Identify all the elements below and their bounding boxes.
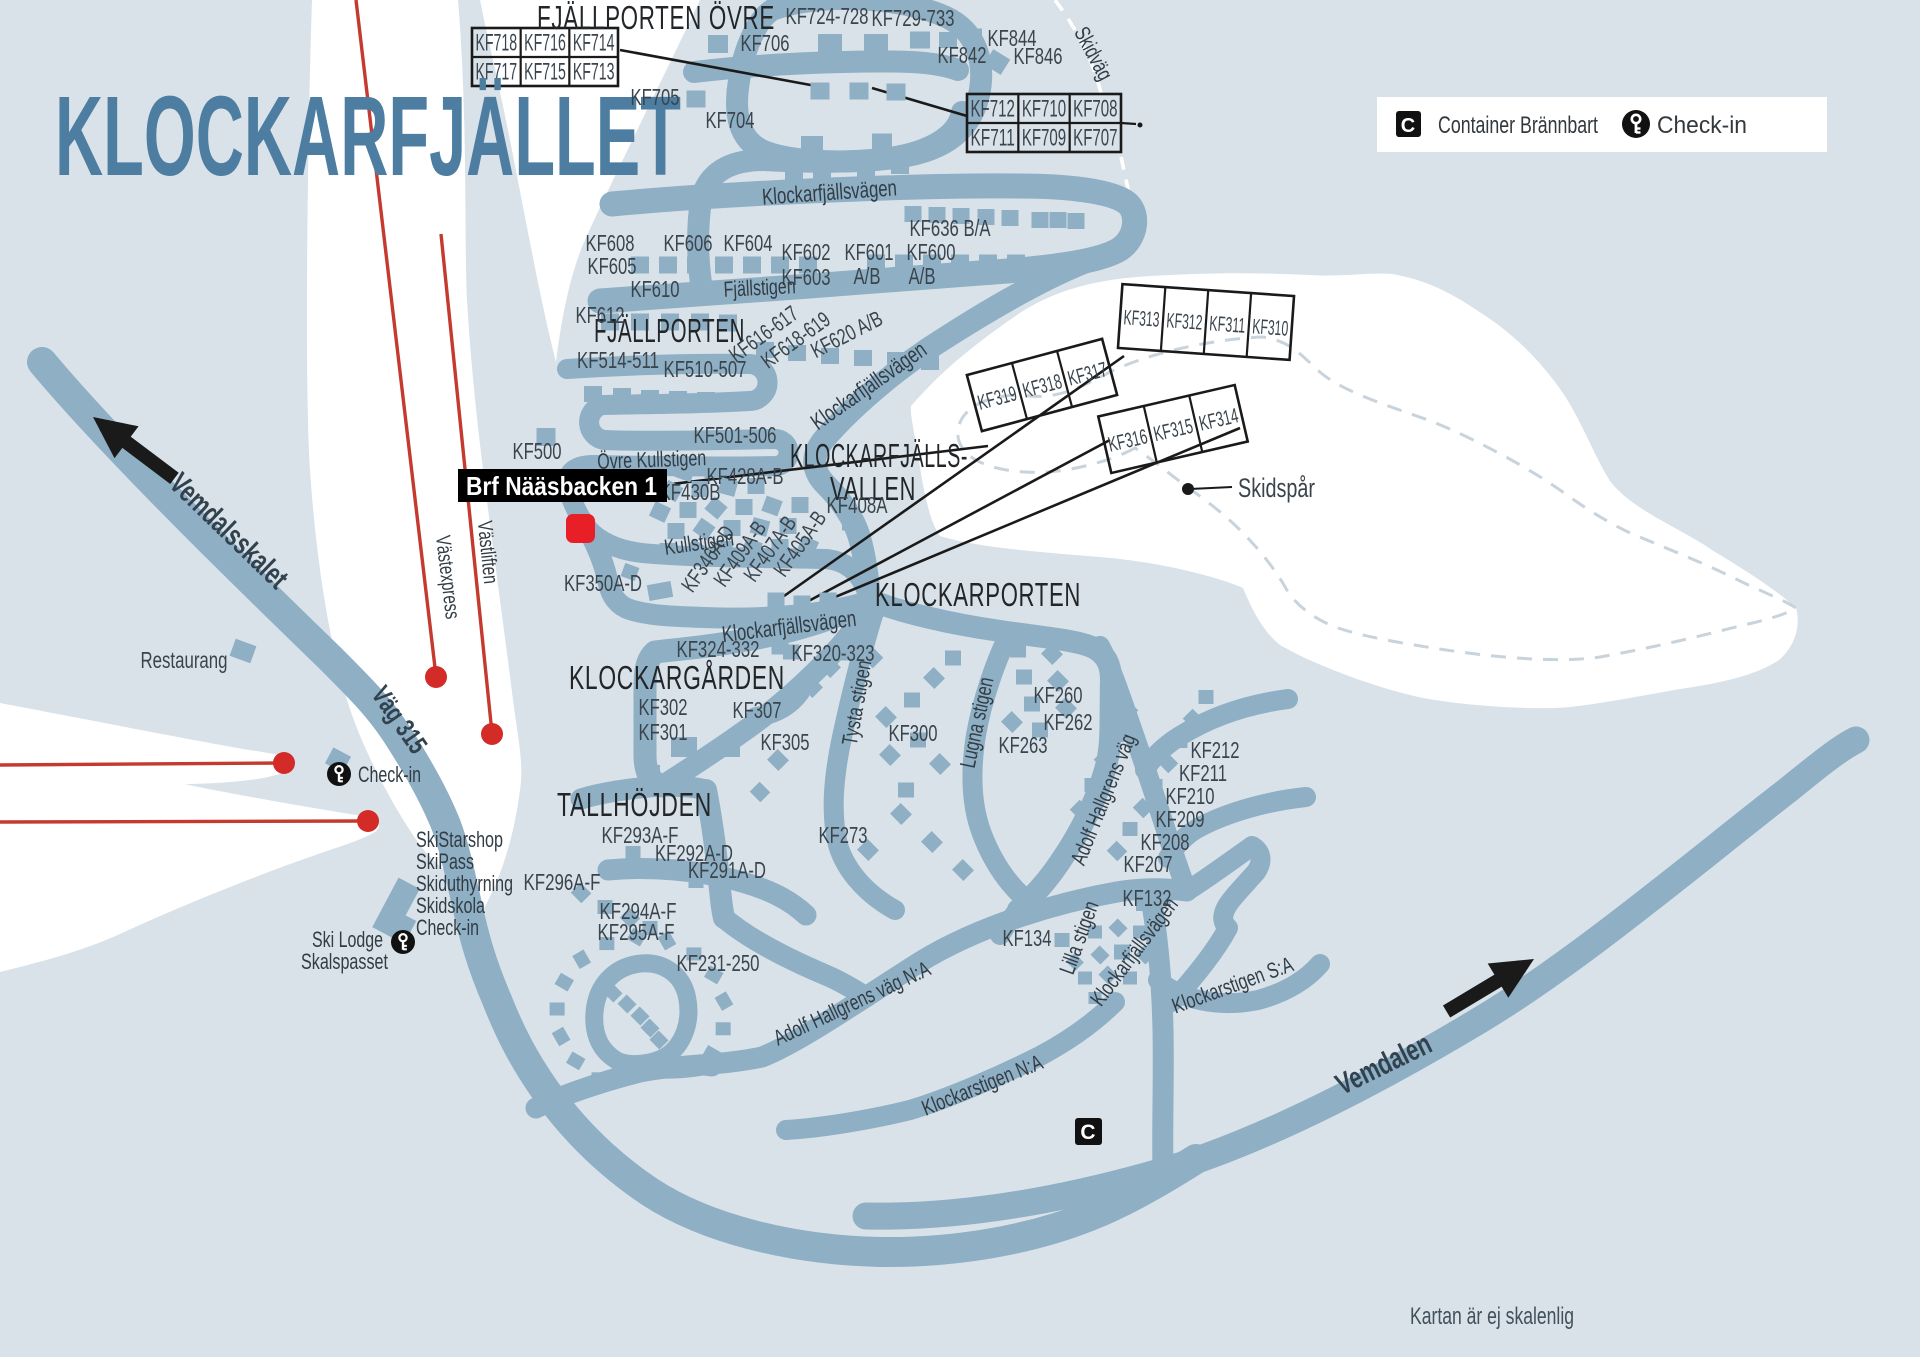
svg-text:KF302: KF302 [639,694,688,720]
svg-text:C: C [1401,115,1415,137]
svg-text:KF263: KF263 [999,732,1048,758]
svg-text:Skalspasset: Skalspasset [301,949,388,974]
svg-text:KF636 B/A: KF636 B/A [910,215,991,241]
svg-text:KF295A-F: KF295A-F [598,919,675,945]
svg-text:Skidspår: Skidspår [1238,473,1315,503]
svg-text:KF273: KF273 [819,822,868,848]
svg-text:KF514-511: KF514-511 [577,347,659,373]
svg-text:C: C [1080,1121,1095,1144]
svg-text:KF311: KF311 [1209,312,1247,337]
svg-text:KF231-250: KF231-250 [677,950,760,976]
svg-text:KLOCKARFJÄLLET: KLOCKARFJÄLLET [55,73,681,199]
svg-text:KLOCKARGÅRDEN: KLOCKARGÅRDEN [569,659,785,696]
svg-text:Brf Nääsbacken 1: Brf Nääsbacken 1 [466,471,657,501]
svg-text:KF310: KF310 [1251,315,1289,340]
svg-text:KF706: KF706 [741,30,790,56]
svg-text:KF601: KF601 [845,239,894,265]
svg-text:KF708: KF708 [1073,96,1117,123]
svg-text:KF207: KF207 [1124,851,1173,877]
svg-text:Check-in: Check-in [416,915,479,940]
svg-text:KF729-733: KF729-733 [872,5,955,31]
svg-text:KF846: KF846 [1014,43,1063,69]
svg-text:Container Brännbart: Container Brännbart [1438,112,1598,139]
svg-text:KF709: KF709 [1022,125,1066,152]
svg-text:KF724-728: KF724-728 [786,3,869,29]
svg-text:KF260: KF260 [1034,682,1083,708]
svg-text:KF705: KF705 [631,84,680,110]
svg-text:KLOCKARPORTEN: KLOCKARPORTEN [875,576,1081,613]
svg-text:KF842: KF842 [938,42,987,68]
svg-text:Kartan är ej skalenlig: Kartan är ej skalenlig [1410,1303,1574,1330]
svg-text:KF606: KF606 [664,230,713,256]
svg-text:Fjällstigen: Fjällstigen [723,273,796,302]
svg-text:KF712: KF712 [971,96,1015,123]
svg-text:KF291A-D: KF291A-D [688,857,766,883]
svg-text:KF296A-F: KF296A-F [524,869,601,895]
svg-text:KF718: KF718 [475,30,517,57]
svg-text:Check-in: Check-in [1657,112,1747,139]
svg-text:KF605: KF605 [588,253,637,279]
svg-text:FJÄLLPORTEN ÖVRE: FJÄLLPORTEN ÖVRE [537,0,775,36]
svg-text:KF604: KF604 [724,230,773,256]
svg-text:Restaurang: Restaurang [141,647,228,673]
svg-text:KF501-506: KF501-506 [694,422,777,448]
svg-text:KF710: KF710 [1022,96,1066,123]
svg-text:TALLHÖJDEN: TALLHÖJDEN [557,786,712,823]
svg-text:KF610: KF610 [631,276,680,302]
svg-text:KF262: KF262 [1044,709,1093,735]
svg-text:KF602: KF602 [782,239,831,265]
svg-text:KF711: KF711 [971,125,1015,152]
svg-text:KF430B: KF430B [660,479,721,505]
svg-text:A/B: A/B [909,263,936,289]
svg-text:KF313: KF313 [1123,306,1161,331]
svg-text:KF312: KF312 [1166,309,1204,334]
svg-text:KF350A-D: KF350A-D [564,570,642,596]
svg-text:KF707: KF707 [1073,125,1117,152]
svg-text:KF408A: KF408A [827,492,888,518]
svg-text:KF307: KF307 [733,697,782,723]
svg-text:A/B: A/B [854,263,881,289]
svg-text:KF704: KF704 [706,107,755,133]
svg-text:KF300: KF300 [889,720,938,746]
svg-text:KF134: KF134 [1003,925,1052,951]
svg-text:KF500: KF500 [513,438,562,464]
svg-text:KLOCKARFJÄLLS-: KLOCKARFJÄLLS- [790,437,968,474]
svg-text:Check-in: Check-in [358,762,421,787]
svg-text:KF600: KF600 [907,239,956,265]
svg-text:KF612: KF612 [576,302,625,328]
svg-text:KF305: KF305 [761,729,810,755]
svg-text:KF301: KF301 [639,719,688,745]
